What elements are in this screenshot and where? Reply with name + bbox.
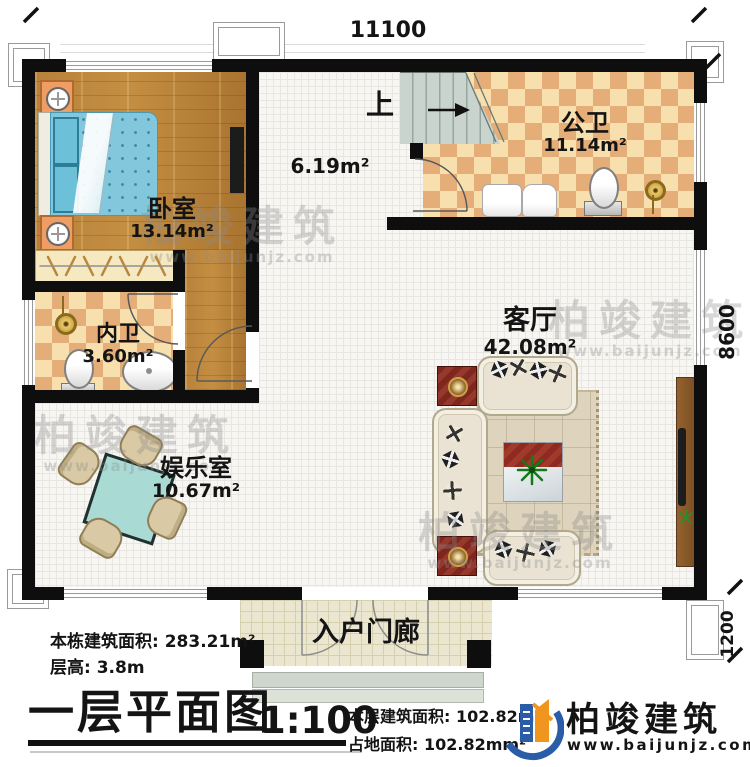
wall-suite-bottom [35,390,259,403]
porch-step [252,672,484,688]
brand-logo-icon [500,690,564,762]
watermark: 柏竣建筑 www.baijunjz.com [418,512,622,572]
washing-machine [482,184,522,217]
window-bedroom-top [66,59,212,72]
building-total-area-text: 本栋建筑面积: 283.21m² [50,627,255,652]
room-label-living: 客厅 42.08m² [484,306,577,359]
wall-right [694,365,707,600]
wall-top [212,59,707,72]
dimension-top: 11100 [338,18,438,43]
stairs-up-text: 上 [366,90,394,121]
room-label-entertainment: 娱乐室 10.67m² [152,455,240,503]
stairs-up-label: 上 [366,90,394,121]
room-name: 公卫 [543,110,627,136]
living-tv [678,428,686,506]
window-inner-bath-left [22,300,35,385]
watermark-url: www.baijunjz.com [140,248,344,266]
wall-public-bath-door-stub [410,143,423,159]
wall-left [22,59,35,300]
wall-public-bath-bottom [387,217,707,230]
wall-right [694,59,707,103]
watermark-text: 柏竣建筑 [34,415,238,457]
nightstand [40,215,74,251]
lamp-icon [46,87,70,111]
room-area: 10.67m² [152,481,240,503]
table-ornament-icon [448,377,468,397]
room-name: 内卫 [82,323,153,347]
wall-bottom [428,587,518,600]
room-name: 客厅 [484,306,577,336]
room-area: 13.14m² [130,222,214,243]
wall-bottom [207,587,302,600]
watermark-text: 柏竣建筑 [418,512,622,554]
room-label-bedroom: 卧室 13.14m² [130,196,214,243]
guide-line [60,44,645,45]
nightstand [40,80,74,116]
floor-corridor [185,250,246,390]
room-area: 11.14m² [543,136,627,157]
room-label-public-bath: 公卫 11.14m² [543,110,627,157]
bed-pillow [53,117,79,165]
side-table [437,366,477,406]
floor-drain [645,180,666,201]
room-area: 42.08m² [484,336,577,359]
toilet [589,167,619,209]
floor-plan-page: 卧室 13.14m² 内卫 3.60m² 娱乐室 10.67m² 公卫 11.1… [0,0,750,767]
room-name: 娱乐室 [152,455,240,481]
guide-line [60,52,645,53]
coffee-table-top [504,443,562,467]
water-heater [522,184,557,217]
wall-bottom [22,587,64,600]
wall-right [694,182,707,250]
brand-name: 柏竣建筑 [566,692,722,741]
room-area: 6.19m² [291,155,370,178]
dimension-right-height: 8600 [715,292,739,372]
wall-wardrobe-divider [35,281,173,292]
wall-bottom [662,587,707,600]
window-entertainment-bottom [64,587,207,600]
hall-area-label: 6.19m² [291,155,370,178]
dimension-right-porch: 1200 [718,599,738,669]
room-area: 3.60m² [82,347,153,368]
shower-head [55,313,77,335]
lamp-icon [46,222,70,246]
wall-inner-bath-right-stub [173,350,185,390]
window-public-bath-right [694,103,707,182]
porch-pillar [467,640,491,668]
window-living-bottom [518,587,662,600]
bedroom-tv [230,127,244,193]
exterior-window-frame [213,22,285,61]
room-name: 卧室 [130,196,214,222]
coffee-table [503,442,563,502]
coffee-table-glass [504,467,562,501]
brand-website: www.baijunjz.com [567,736,750,754]
title-underline-thin [30,751,362,753]
room-name: 入户门廊 [312,618,420,648]
watermark-url: www.baijunjz.com [418,554,622,572]
room-label-inner-bath: 内卫 3.60m² [82,323,153,368]
room-label-porch: 入户门廊 [312,618,420,648]
sink-drain [146,368,152,374]
floor-height-text: 层高: 3.8m [50,653,145,678]
drawing-title: 一层平面图 [28,676,273,742]
